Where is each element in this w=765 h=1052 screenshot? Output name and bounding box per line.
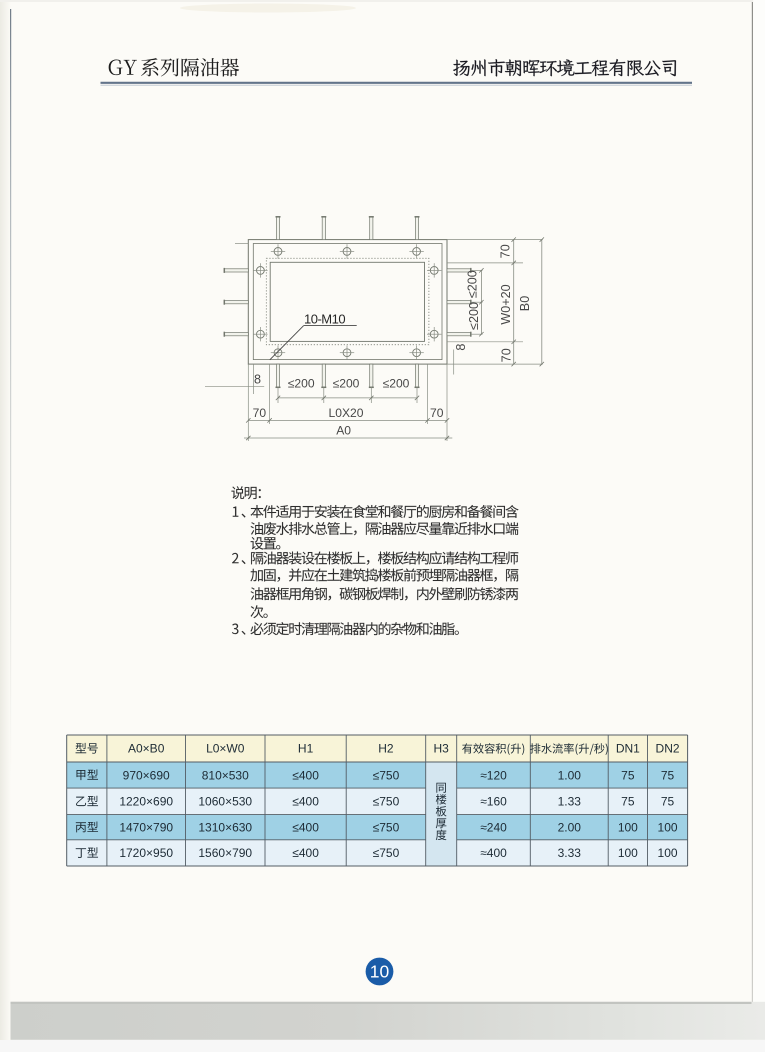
svg-text:70: 70 (498, 244, 512, 258)
svg-text:≤750: ≤750 (373, 820, 400, 834)
svg-text:≤400: ≤400 (292, 795, 319, 809)
svg-text:≤750: ≤750 (373, 768, 400, 782)
svg-text:8: 8 (254, 373, 261, 387)
svg-text:≤200: ≤200 (288, 377, 315, 391)
svg-text:DN2: DN2 (656, 742, 680, 756)
svg-text:B0: B0 (518, 296, 532, 311)
svg-text:10-M10: 10-M10 (304, 311, 345, 326)
svg-text:L0X20: L0X20 (329, 406, 364, 420)
svg-text:75: 75 (621, 768, 635, 782)
svg-text:810×530: 810×530 (202, 768, 249, 782)
svg-text:75: 75 (661, 768, 675, 782)
svg-text:1470×790: 1470×790 (119, 820, 173, 834)
svg-text:75: 75 (661, 795, 675, 809)
svg-text:1.33: 1.33 (558, 795, 582, 809)
svg-text:≤750: ≤750 (373, 795, 400, 809)
svg-text:70: 70 (430, 406, 444, 420)
svg-text:L0×W0: L0×W0 (206, 742, 245, 756)
svg-text:≤400: ≤400 (292, 820, 319, 834)
svg-text:1560×790: 1560×790 (198, 846, 252, 860)
svg-text:100: 100 (658, 846, 678, 860)
svg-text:75: 75 (621, 795, 635, 809)
svg-text:A0: A0 (336, 424, 351, 438)
svg-text:≈400: ≈400 (480, 846, 507, 860)
svg-text:2.00: 2.00 (558, 820, 582, 834)
svg-text:W0+20: W0+20 (499, 284, 513, 324)
svg-text:≤200: ≤200 (465, 270, 479, 298)
svg-text:1220×690: 1220×690 (119, 795, 173, 809)
svg-text:DN1: DN1 (616, 742, 640, 756)
svg-text:A0×B0: A0×B0 (128, 742, 165, 756)
svg-text:≤750: ≤750 (373, 846, 400, 860)
svg-text:3.33: 3.33 (558, 846, 582, 860)
svg-text:100: 100 (658, 820, 678, 834)
svg-text:H2: H2 (378, 742, 394, 756)
svg-text:≤400: ≤400 (292, 846, 319, 860)
svg-text:≤200: ≤200 (383, 377, 410, 391)
svg-text:≤400: ≤400 (292, 768, 319, 782)
svg-text:1.00: 1.00 (558, 768, 582, 782)
svg-text:8: 8 (454, 344, 468, 351)
svg-text:1310×630: 1310×630 (198, 820, 252, 834)
svg-text:≈240: ≈240 (480, 820, 507, 834)
svg-text:1060×530: 1060×530 (198, 795, 252, 809)
svg-text:≤200: ≤200 (333, 377, 360, 391)
svg-text:≤200: ≤200 (467, 302, 481, 330)
svg-text:H3: H3 (434, 742, 450, 756)
svg-text:10: 10 (370, 962, 390, 982)
svg-text:≈160: ≈160 (480, 795, 507, 809)
svg-text:70: 70 (253, 406, 267, 420)
svg-text:70: 70 (499, 348, 513, 362)
svg-text:100: 100 (618, 820, 638, 834)
svg-text:≈120: ≈120 (480, 768, 507, 782)
svg-text:H1: H1 (298, 742, 314, 756)
svg-text:1720×950: 1720×950 (119, 846, 173, 860)
svg-text:100: 100 (618, 846, 638, 860)
svg-text:970×690: 970×690 (123, 768, 170, 782)
